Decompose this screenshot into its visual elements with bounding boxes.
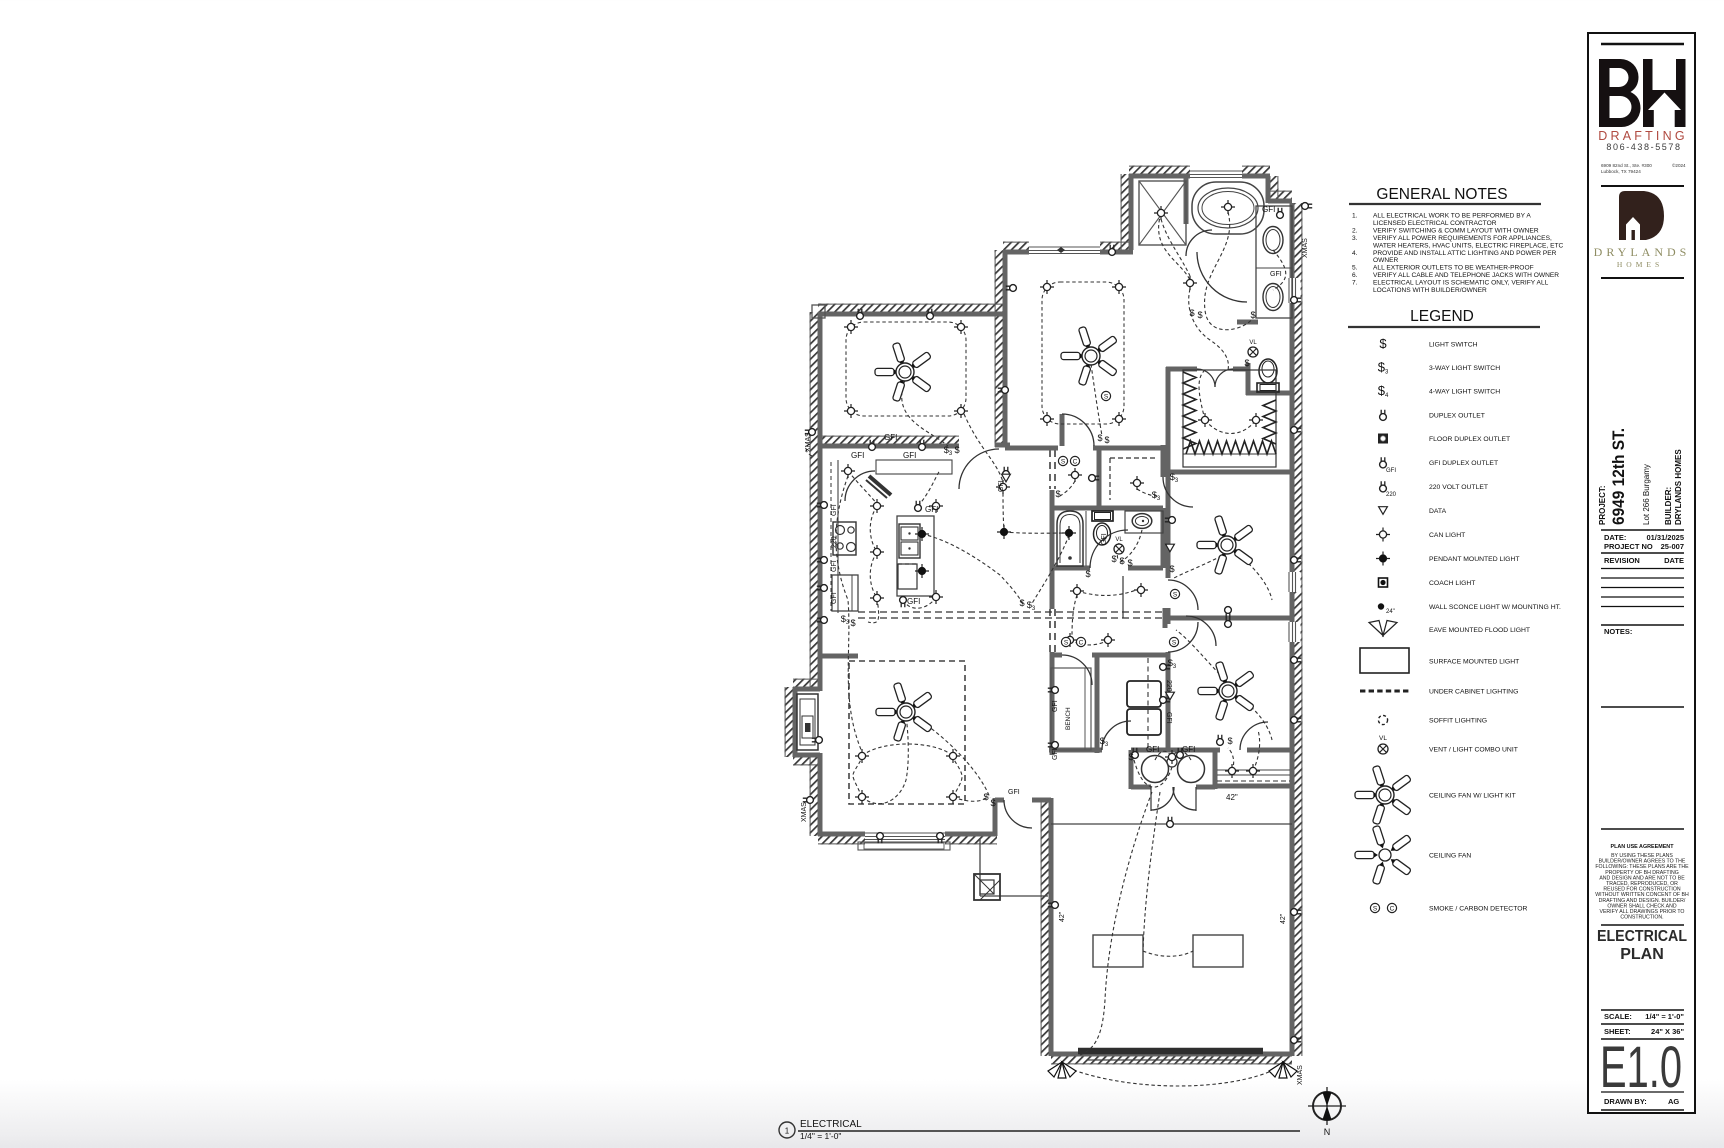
svg-text:42": 42" — [1280, 913, 1287, 924]
svg-text:COACH LIGHT: COACH LIGHT — [1429, 580, 1475, 587]
svg-text:GFI: GFI — [1008, 789, 1020, 796]
svg-text:Lot 266 Burgamy: Lot 266 Burgamy — [1642, 464, 1651, 525]
svg-text:SMOKE / CARBON DETECTOR: SMOKE / CARBON DETECTOR — [1429, 905, 1528, 912]
svg-text:$: $ — [1128, 752, 1133, 762]
svg-text:PROJECT:: PROJECT: — [1598, 485, 1607, 525]
svg-text:SOFFIT LIGHTING: SOFFIT LIGHTING — [1429, 717, 1487, 724]
svg-text:EAVE MOUNTED FLOOD LIGHT: EAVE MOUNTED FLOOD LIGHT — [1429, 627, 1530, 634]
svg-text:220 VOLT OUTLET: 220 VOLT OUTLET — [1429, 484, 1488, 491]
svg-text:LIGHT SWITCH: LIGHT SWITCH — [1429, 341, 1478, 348]
svg-text:$3: $3 — [1152, 490, 1161, 502]
svg-text:$: $ — [983, 792, 988, 802]
svg-text:GFI: GFI — [1270, 271, 1282, 278]
svg-text:2.: 2. — [1352, 227, 1358, 234]
svg-text:CAN LIGHT: CAN LIGHT — [1429, 532, 1465, 539]
svg-text:4.: 4. — [1352, 250, 1358, 257]
svg-text:©2024: ©2024 — [1672, 162, 1686, 168]
svg-text:S: S — [1172, 640, 1177, 647]
svg-text:01/31/2025: 01/31/2025 — [1646, 533, 1684, 542]
svg-text:1.: 1. — [1352, 213, 1358, 220]
svg-text:WALL SCONCE LIGHT W/ MOUNTING: WALL SCONCE LIGHT W/ MOUNTING HT. — [1429, 604, 1561, 611]
svg-text:DRAWN BY:: DRAWN BY: — [1604, 1097, 1647, 1106]
svg-text:BENCH: BENCH — [1065, 707, 1072, 730]
svg-text:GFI: GFI — [1182, 745, 1195, 754]
svg-text:DATA: DATA — [1429, 508, 1447, 515]
svg-text:220: 220 — [831, 536, 838, 548]
svg-text:C: C — [1390, 906, 1395, 913]
svg-text:GFI: GFI — [884, 433, 897, 442]
svg-text:C: C — [1079, 640, 1084, 647]
svg-text:$: $ — [1189, 308, 1194, 318]
svg-text:GFI: GFI — [1052, 748, 1059, 760]
svg-text:1: 1 — [785, 1127, 790, 1136]
svg-text:FLOOR DUPLEX OUTLET: FLOOR DUPLEX OUTLET — [1429, 436, 1510, 443]
svg-text:E1.0: E1.0 — [1600, 1035, 1682, 1100]
svg-text:PLAN USE AGREEMENT: PLAN USE AGREEMENT — [1611, 844, 1675, 850]
svg-text:1/4" = 1'-0": 1/4" = 1'-0" — [800, 1131, 841, 1141]
svg-text:VERIFY ALL POWER REQUIREMENTS: VERIFY ALL POWER REQUIREMENTS FOR APPLIA… — [1373, 235, 1552, 242]
svg-text:$: $ — [954, 445, 959, 455]
svg-text:VL: VL — [1249, 340, 1257, 346]
svg-text:HOMES: HOMES — [1617, 260, 1663, 269]
svg-text:$3: $3 — [1027, 600, 1036, 612]
svg-text:$: $ — [1127, 558, 1132, 568]
svg-text:DRAFTING: DRAFTING — [1598, 129, 1688, 143]
svg-text:CONSTRUCTION.: CONSTRUCTION. — [1620, 915, 1663, 921]
svg-text:VENT / LIGHT COMBO UNIT: VENT / LIGHT COMBO UNIT — [1429, 746, 1518, 753]
svg-text:GFI: GFI — [1262, 205, 1275, 214]
svg-text:$: $ — [1097, 433, 1102, 443]
svg-text:220: 220 — [1386, 492, 1397, 498]
svg-text:GFI: GFI — [1052, 700, 1059, 712]
svg-text:$3: $3 — [1100, 736, 1109, 748]
svg-text:BUILDER:: BUILDER: — [1664, 487, 1673, 525]
svg-text:GFI DUPLEX OUTLET: GFI DUPLEX OUTLET — [1429, 460, 1498, 467]
svg-text:GFI: GFI — [903, 451, 916, 460]
svg-text:GFI: GFI — [1386, 468, 1396, 474]
svg-text:VERIFY SWITCHING & COMM LAYOUT: VERIFY SWITCHING & COMM LAYOUT WITH OWNE… — [1373, 227, 1539, 234]
svg-text:OWNER: OWNER — [1373, 257, 1399, 264]
svg-text:N: N — [1324, 1127, 1331, 1137]
svg-text:7.: 7. — [1352, 280, 1358, 287]
svg-text:DRYLANDS HOMES: DRYLANDS HOMES — [1674, 449, 1683, 525]
svg-text:PENDANT MOUNTED LIGHT: PENDANT MOUNTED LIGHT — [1429, 556, 1520, 563]
svg-text:S: S — [1064, 640, 1069, 647]
svg-text:WATER HEATERS, HVAC UNITS, ELE: WATER HEATERS, HVAC UNITS, ELECTRIC FIRE… — [1373, 242, 1564, 249]
svg-text:Lubbock, TX 79424: Lubbock, TX 79424 — [1601, 169, 1641, 174]
svg-text:$: $ — [1244, 358, 1249, 368]
svg-text:6.: 6. — [1352, 272, 1358, 279]
svg-text:6949 12th ST.: 6949 12th ST. — [1609, 428, 1628, 525]
svg-text:GFI: GFI — [831, 560, 838, 572]
svg-text:$: $ — [1227, 736, 1232, 746]
svg-text:DATE: DATE — [1664, 556, 1684, 565]
svg-text:S: S — [1173, 592, 1178, 599]
svg-text:DUPLEX OUTLET: DUPLEX OUTLET — [1429, 412, 1485, 419]
svg-text:UNDER CABINET LIGHTING: UNDER CABINET LIGHTING — [1429, 688, 1518, 695]
svg-text:XMAS: XMAS — [805, 432, 812, 452]
svg-text:$3: $3 — [1378, 360, 1389, 376]
svg-text:$: $ — [1104, 435, 1109, 445]
svg-text:GFI: GFI — [831, 504, 838, 516]
svg-text:S: S — [1373, 906, 1378, 913]
svg-text:$: $ — [1111, 554, 1116, 564]
svg-text:24": 24" — [1386, 609, 1395, 615]
svg-text:$: $ — [1379, 336, 1387, 351]
svg-text:VL: VL — [1379, 735, 1387, 742]
svg-text:SURFACE MOUNTED LIGHT: SURFACE MOUNTED LIGHT — [1429, 658, 1519, 665]
svg-text:CEILING FAN W/ LIGHT KIT: CEILING FAN W/ LIGHT KIT — [1429, 792, 1516, 799]
svg-text:XMAS: XMAS — [1297, 1065, 1304, 1085]
svg-text:42": 42" — [1226, 793, 1238, 802]
svg-text:1/4" = 1'-0": 1/4" = 1'-0" — [1645, 1012, 1684, 1021]
svg-text:$: $ — [1019, 598, 1024, 608]
svg-text:GFI: GFI — [851, 451, 864, 460]
svg-text:5.: 5. — [1352, 265, 1358, 272]
svg-text:$: $ — [1085, 569, 1090, 579]
svg-text:PROJECT NO: PROJECT NO — [1604, 542, 1653, 551]
svg-text:220: 220 — [1165, 680, 1172, 692]
svg-text:$: $ — [1119, 556, 1124, 566]
svg-text:$: $ — [1169, 564, 1174, 574]
svg-text:REVISION: REVISION — [1604, 556, 1640, 565]
svg-text:ELECTRICAL LAYOUT IS SCHEMATIC: ELECTRICAL LAYOUT IS SCHEMATIC ONLY, VER… — [1373, 280, 1549, 287]
svg-text:6909 82nd St., Ste. #300: 6909 82nd St., Ste. #300 — [1601, 163, 1652, 168]
svg-text:$: $ — [990, 798, 995, 808]
svg-text:C: C — [1073, 459, 1078, 466]
svg-text:NOTES:: NOTES: — [1604, 627, 1632, 636]
svg-text:806-438-5578: 806-438-5578 — [1606, 142, 1681, 152]
svg-text:$: $ — [850, 618, 855, 628]
svg-text:GFI: GFI — [831, 592, 838, 604]
svg-text:GFI: GFI — [1165, 712, 1172, 724]
svg-text:$: $ — [1197, 310, 1202, 320]
svg-text:PROVIDE AND INSTALL ATTIC LIGH: PROVIDE AND INSTALL ATTIC LIGHTING AND P… — [1373, 250, 1557, 257]
svg-text:ELECTRICAL: ELECTRICAL — [800, 1119, 862, 1130]
svg-text:3-WAY LIGHT SWITCH: 3-WAY LIGHT SWITCH — [1429, 365, 1500, 372]
svg-text:XMAS: XMAS — [1302, 238, 1309, 258]
svg-text:$: $ — [1250, 310, 1255, 320]
svg-text:GFI: GFI — [1101, 533, 1108, 545]
svg-text:GENERAL NOTES: GENERAL NOTES — [1376, 186, 1507, 203]
svg-text:GFI: GFI — [1146, 745, 1159, 754]
svg-text:PLAN: PLAN — [1620, 946, 1664, 963]
svg-text:DATE:: DATE: — [1604, 533, 1626, 542]
svg-text:ALL EXTERIOR OUTLETS TO BE WEA: ALL EXTERIOR OUTLETS TO BE WEATHER-PROOF — [1373, 265, 1534, 272]
svg-text:4-WAY LIGHT SWITCH: 4-WAY LIGHT SWITCH — [1429, 388, 1500, 395]
svg-text:VL: VL — [1115, 537, 1123, 543]
svg-text:GFI: GFI — [998, 480, 1005, 492]
svg-text:$4: $4 — [1378, 383, 1389, 399]
svg-text:ELECTRICAL: ELECTRICAL — [1597, 928, 1687, 945]
svg-text:XMAS: XMAS — [801, 802, 808, 822]
svg-text:LEGEND: LEGEND — [1410, 308, 1474, 325]
svg-text:LOCATIONS WITH BUILDER/OWNER: LOCATIONS WITH BUILDER/OWNER — [1373, 287, 1487, 294]
svg-text:LICENSED ELECTRICAL CONTRACTOR: LICENSED ELECTRICAL CONTRACTOR — [1373, 220, 1497, 227]
svg-text:CEILING FAN: CEILING FAN — [1429, 852, 1471, 859]
svg-text:3.: 3. — [1352, 235, 1358, 242]
svg-text:AG: AG — [1668, 1097, 1679, 1106]
svg-text:VERIFY ALL CABLE AND TELEPHONE: VERIFY ALL CABLE AND TELEPHONE JACKS WIT… — [1373, 272, 1559, 279]
svg-text:SCALE:: SCALE: — [1604, 1012, 1632, 1021]
svg-text:25-007: 25-007 — [1661, 542, 1684, 551]
svg-text:DRYLANDS: DRYLANDS — [1594, 245, 1691, 259]
svg-text:S: S — [1061, 459, 1066, 466]
svg-text:ALL ELECTRICAL WORK TO BE PERF: ALL ELECTRICAL WORK TO BE PERFORMED BY A — [1373, 213, 1531, 220]
svg-text:GFI: GFI — [907, 597, 920, 606]
svg-text:S: S — [1104, 394, 1109, 401]
svg-text:$: $ — [1055, 489, 1060, 499]
svg-text:42": 42" — [1059, 911, 1066, 922]
svg-text:GFI: GFI — [925, 505, 938, 514]
